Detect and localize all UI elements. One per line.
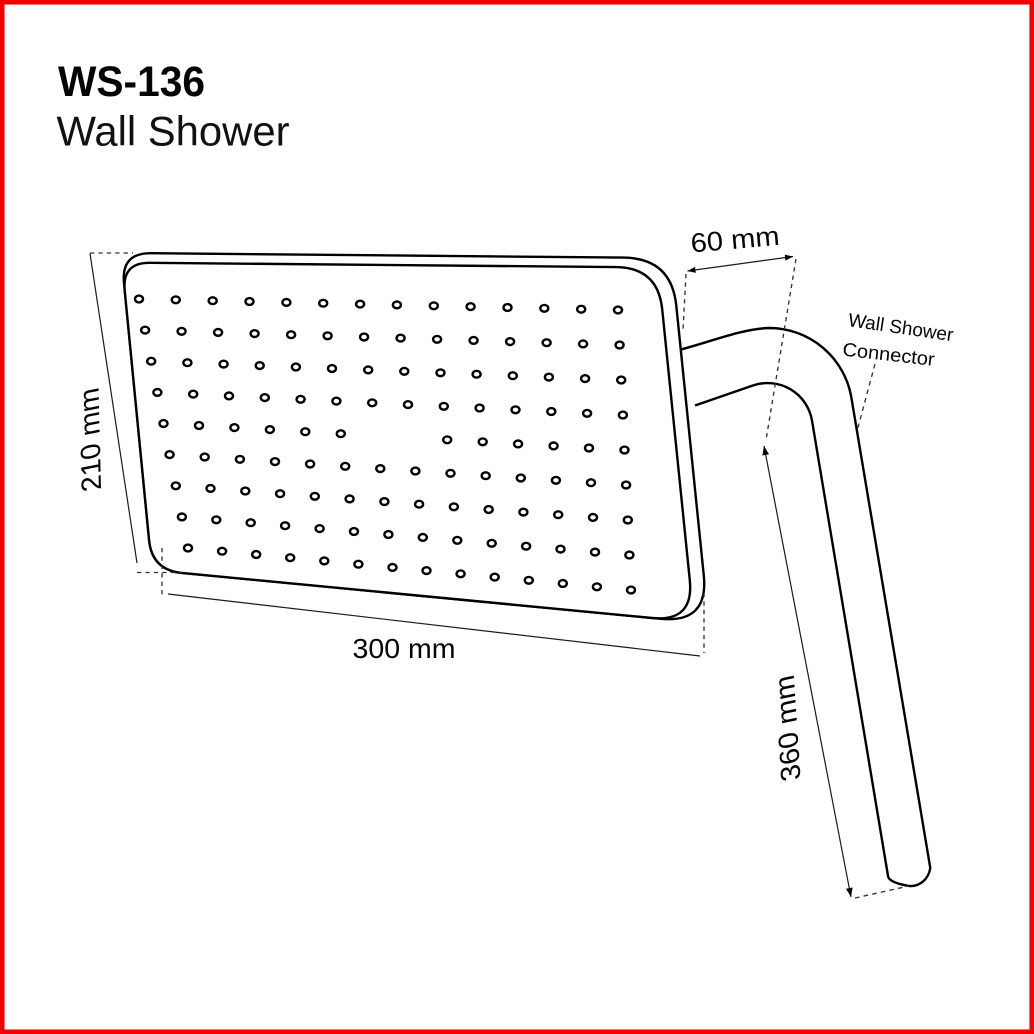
svg-text:210 mm: 210 mm (73, 385, 107, 494)
svg-text:Wall Shower: Wall Shower (57, 108, 290, 155)
svg-text:WS-136: WS-136 (58, 58, 205, 106)
svg-text:300 mm: 300 mm (353, 633, 456, 664)
